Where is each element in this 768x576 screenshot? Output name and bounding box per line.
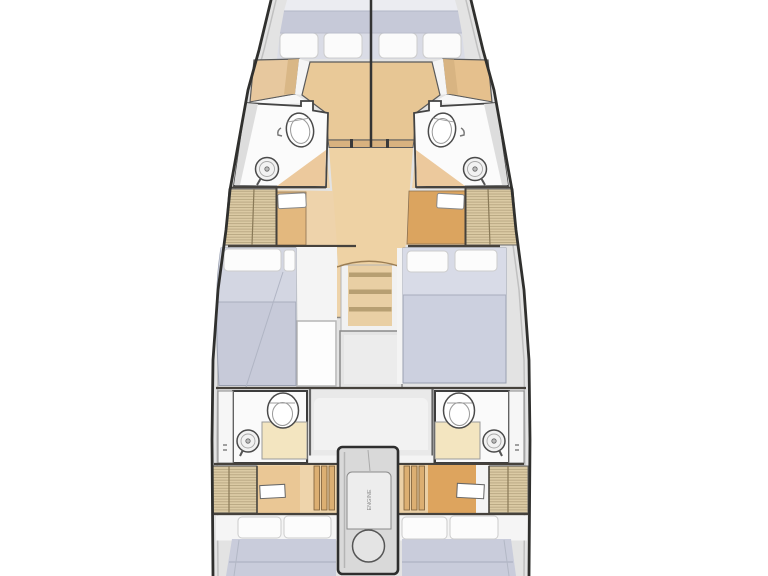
svg-text:ENGINE: ENGINE	[367, 489, 373, 510]
